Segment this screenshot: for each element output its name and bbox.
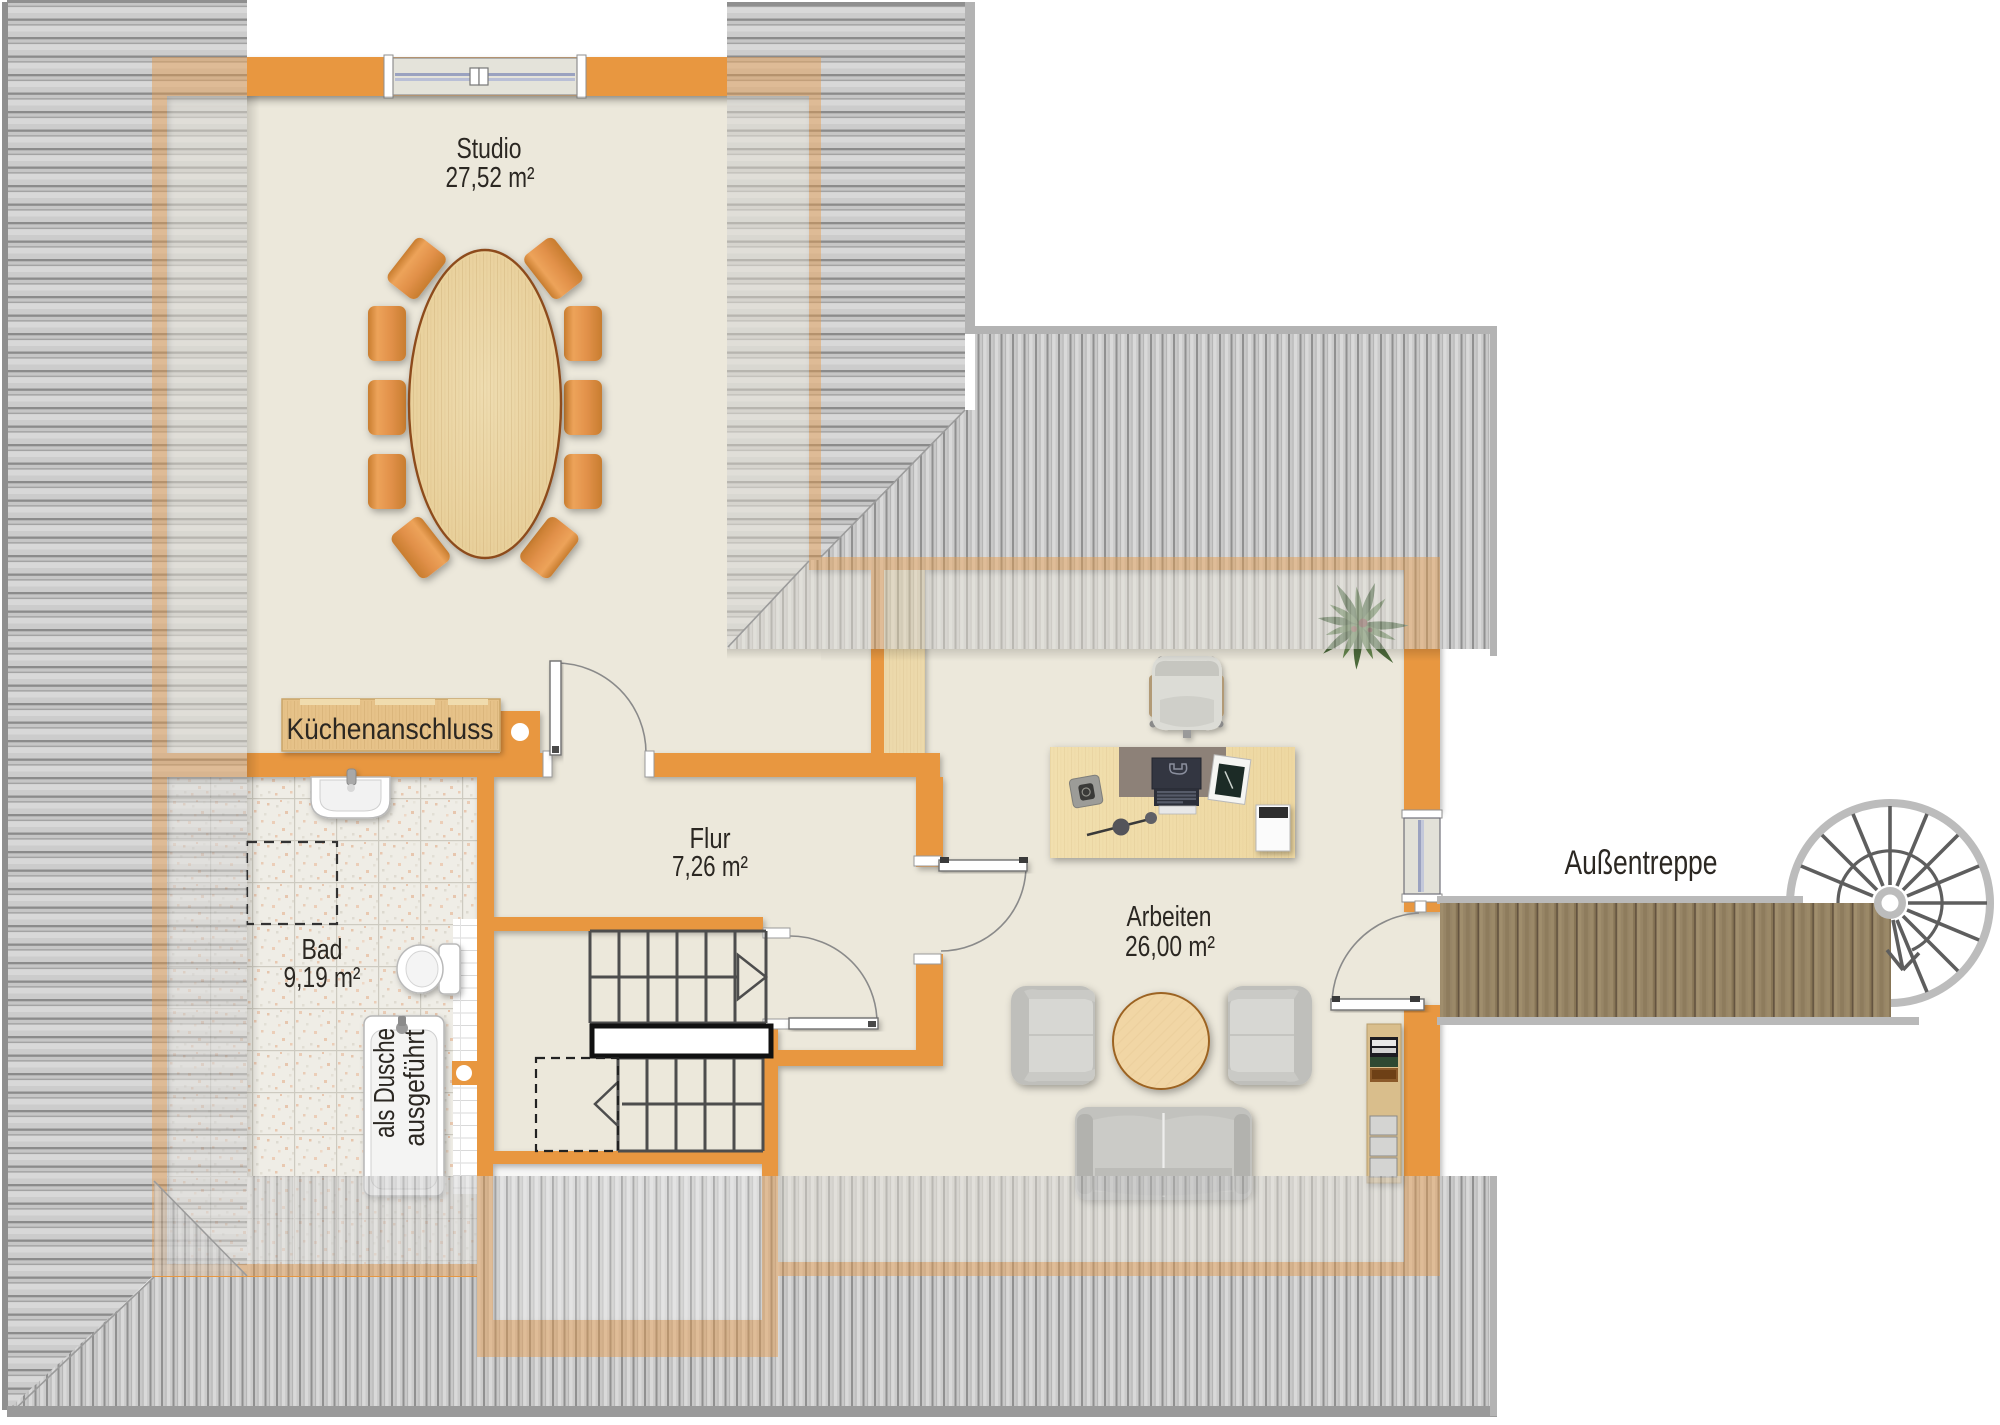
svg-text:9,19 m²: 9,19 m² (284, 962, 361, 994)
svg-text:Studio: Studio (457, 133, 522, 165)
svg-text:26,00 m²: 26,00 m² (1125, 931, 1215, 963)
svg-text:27,52 m²: 27,52 m² (446, 162, 535, 194)
svg-text:ausgeführt: ausgeführt (399, 1029, 431, 1146)
svg-text:als Dusche: als Dusche (369, 1028, 401, 1138)
svg-text:Außentreppe: Außentreppe (1565, 844, 1718, 882)
svg-text:7,26 m²: 7,26 m² (672, 851, 748, 883)
svg-text:Küchenanschluss: Küchenanschluss (287, 713, 494, 746)
svg-text:Arbeiten: Arbeiten (1127, 901, 1212, 933)
